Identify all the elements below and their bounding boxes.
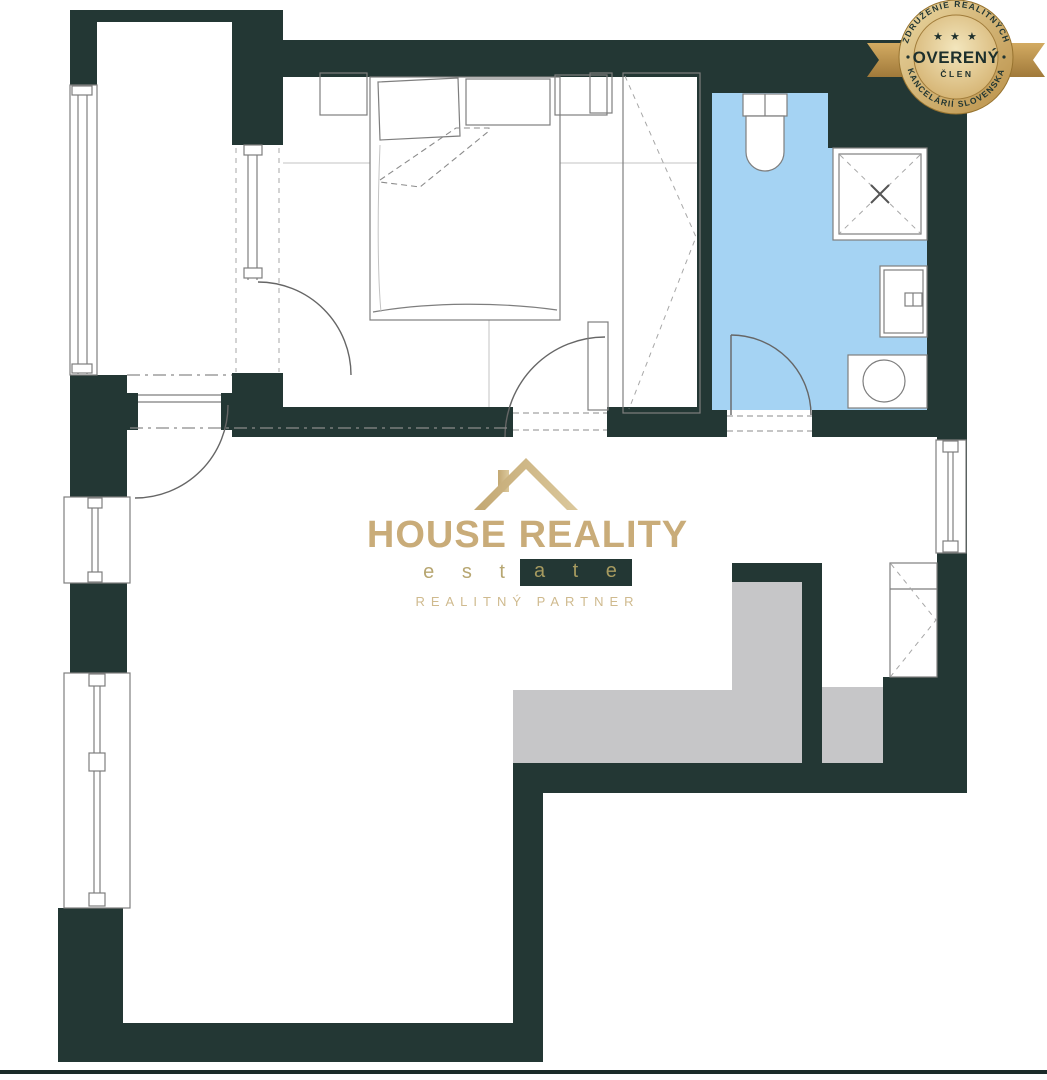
logo-tagline: REALITNÝ PARTNER <box>325 594 730 609</box>
hall-window <box>64 497 130 583</box>
nightstand-left <box>320 73 367 115</box>
bed <box>370 77 560 320</box>
wall-corner-mass <box>883 677 967 793</box>
right-wall-window <box>936 440 966 553</box>
sink <box>880 266 927 337</box>
logo-estate-boxed: a t e <box>520 559 632 586</box>
entry-door <box>135 395 228 498</box>
wall-bedroom-bottom-left <box>283 407 513 437</box>
bedroom-wardrobe <box>588 73 700 413</box>
wall-bathroom-top <box>712 77 828 93</box>
shower <box>833 148 927 240</box>
wall-kitchen-west <box>513 763 543 1062</box>
agency-logo: HOUSE REALITY e s t a t e REALITNÝ PARTN… <box>325 456 730 609</box>
badge-stars: ★ ★ ★ <box>933 31 979 43</box>
badge-dot-right <box>1002 55 1005 58</box>
wall-bathroom-bottom-right <box>812 410 967 437</box>
wall-balcony-bedroom-upper <box>232 10 283 145</box>
badge-dot-left <box>906 55 909 58</box>
living-room-wardrobe <box>890 563 937 677</box>
balcony-bedroom-window <box>236 145 279 372</box>
logo-title: HOUSE REALITY <box>325 516 730 556</box>
kitchen-counter <box>513 582 883 763</box>
living-room-window <box>64 673 130 908</box>
nightstand-right <box>555 75 607 115</box>
wall-bedroom-bottom-right <box>607 407 697 437</box>
image-border-line <box>0 1070 1047 1074</box>
wall-left-upper-block <box>70 375 127 497</box>
wall-bathroom-right <box>927 77 967 437</box>
logo-estate-prefix: e s t <box>423 561 516 584</box>
wall-bathroom-bottom-left <box>697 410 727 437</box>
badge-title: OVERENÝ <box>913 48 1000 67</box>
balcony-glazing-window <box>70 85 97 375</box>
wall-left-mid-block <box>70 583 127 673</box>
wall-balcony-left-top <box>70 10 97 85</box>
logo-estate: e s t a t e <box>325 559 730 586</box>
entry-door-post-left <box>127 393 138 430</box>
bedroom-door <box>505 337 607 437</box>
floor-plan-image: HOUSE REALITY e s t a t e REALITNÝ PARTN… <box>0 0 1047 1080</box>
badge-ribbon-right <box>1010 43 1045 77</box>
roof-with-chimney-icon <box>472 456 584 514</box>
wall-kitchen-partition <box>802 563 822 763</box>
verified-member-badge: ZDRUŽENIE REALITNÝCH KANCELÁRIÍ SLOVENSK… <box>855 0 1047 122</box>
wall-bottom <box>58 1023 543 1062</box>
washing-machine <box>848 355 927 408</box>
balcony-door <box>258 282 351 375</box>
badge-subtitle: ČLEN <box>940 68 973 79</box>
wall-bathroom-left <box>697 77 712 437</box>
toilet <box>743 94 787 171</box>
